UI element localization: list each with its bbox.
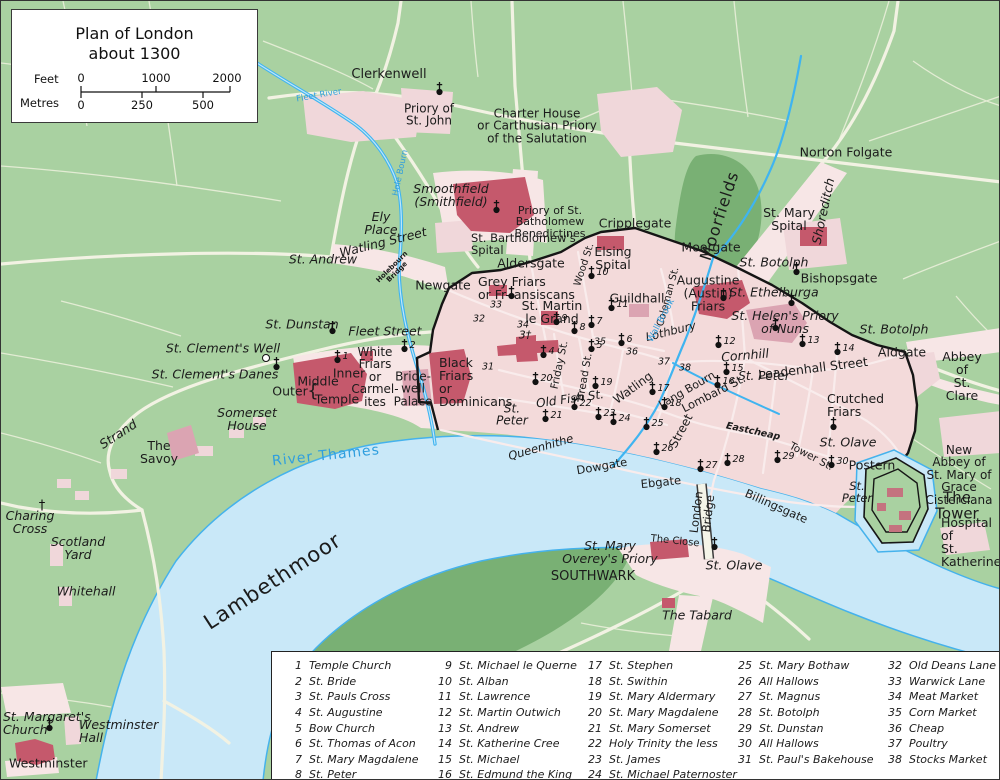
legend-item: 35Corn Market [884,705,996,721]
scale-bar [12,10,257,122]
legend-item-number: 15 [434,753,452,766]
church-icon [271,356,282,375]
legend-item: 3St. Pauls Cross [284,689,419,705]
legend-item-number: 27 [734,690,752,703]
legend-item-number: 9 [434,659,452,672]
legend-item-number: 10 [434,675,452,688]
legend-item-number: 28 [734,706,752,719]
legend-item: 11St. Lawrence [434,689,577,705]
legend-item-number: 1 [284,659,302,672]
legend-item-name: St. Dunstan [759,722,823,735]
church-number: 16 [723,376,735,387]
church-number: 10 [597,267,609,278]
legend-column: 1Temple Church2St. Bride3St. Pauls Cross… [284,658,419,780]
legend-item: 2St. Bride [284,674,419,690]
church-number: 8 [580,322,586,333]
legend-item: 23St. James [584,752,737,768]
map-title-box: Plan of London about 1300 Feet Metres 0 … [11,9,258,123]
legend-item-name: St. Mary Magdalene [309,753,419,766]
legend-item-number: 3 [284,690,302,703]
church-icon: 6 [616,332,627,351]
legend-item: 10St. Alban [434,674,577,690]
legend-item: 22Holy Trinity the less [584,736,737,752]
legend-item-name: Bow Church [309,722,375,735]
legend-item-name: St. Andrew [459,722,519,735]
legend-item-number: 17 [584,659,602,672]
legend-item-name: St. Swithin [609,675,668,688]
legend-item: 12St. Martin Outwich [434,705,577,721]
church-icon: 24 [608,411,619,430]
legend-item-name: St. Paul's Bakehouse [759,753,874,766]
church-icon [44,717,55,736]
legend-item-number: 7 [284,753,302,766]
legend-item-number: 35 [884,706,902,719]
legend-item: 38Stocks Market [884,752,996,768]
church-icon: 29 [772,449,783,468]
church-number: 2 [410,340,416,351]
legend-item-number: 29 [734,722,752,735]
church-icon: 8 [569,320,580,339]
legend-column: 9St. Michael le Querne10St. Alban11St. L… [434,658,577,780]
church-icon: 26 [651,441,662,460]
church-icon: 25 [641,416,652,435]
legend-item-name: St. Edmund the King [459,768,572,780]
church-icon: 18 [659,396,670,415]
legend-item: 21St. Mary Somerset [584,720,737,736]
legend-item: 13St. Andrew [434,720,577,736]
legend: 1Temple Church2St. Bride3St. Pauls Cross… [271,651,1000,780]
church-icon: 27 [695,458,706,477]
legend-item-name: St. Michael le Querne [459,659,577,672]
legend-item: 26All Hallows [734,674,874,690]
legend-item-number: 33 [884,675,902,688]
church-number: 13 [808,335,820,346]
legend-item: 14St. Katherine Cree [434,736,577,752]
legend-item: 4St. Augustine [284,705,419,721]
legend-item-name: St. Katherine Cree [459,737,559,750]
legend-item: 36Cheap [884,720,996,736]
well-icon [262,354,270,362]
church-icon [506,285,517,304]
church-number: 14 [843,343,855,354]
legend-item: 18St. Swithin [584,674,737,690]
legend-item-number: 38 [884,753,902,766]
legend-item-name: St. Mary Aldermary [609,690,715,703]
church-icon: 1 [332,349,343,368]
legend-item-name: St. Stephen [609,659,673,672]
legend-item: 15St. Michael [434,752,577,768]
legend-item-number: 14 [434,737,452,750]
legend-item: 37Poultry [884,736,996,752]
church-icon [491,199,502,218]
church-number: 11 [617,299,629,310]
legend-item: 16St. Edmund the King [434,767,577,780]
church-icon: 10 [586,265,597,284]
site-number: 32 [473,314,485,325]
church-number: 21 [551,410,563,421]
legend-item-name: St. Mary Bothaw [759,659,849,672]
legend-item-name: Old Deans Lane [909,659,996,672]
legend-item-number: 25 [734,659,752,672]
legend-item-number: 12 [434,706,452,719]
legend-item-name: St. Mary Magdalene [609,706,719,719]
legend-item-number: 26 [734,675,752,688]
church-icon: 17 [647,381,658,400]
church-icon [791,261,802,280]
legend-item-number: 16 [434,768,452,780]
legend-item-name: St. Lawrence [459,690,530,703]
legend-item-name: St. Magnus [759,690,820,703]
legend-item: 31St. Paul's Bakehouse [734,752,874,768]
legend-item: 6St. Thomas of Acon [284,736,419,752]
church-number: 1 [343,351,349,362]
church-number: 9 [562,313,568,324]
cross-icon: † [39,499,46,514]
legend-item-number: 2 [284,675,302,688]
church-icon: 23 [593,406,604,425]
legend-item-name: St. Michael [459,753,519,766]
legend-item-number: 6 [284,737,302,750]
church-number: 27 [706,460,718,471]
legend-item: 8St. Peter [284,767,419,780]
legend-item-number: 37 [884,737,902,750]
legend-item: 1Temple Church [284,658,419,674]
site-number: 38 [679,363,691,374]
church-number: 17 [658,383,670,394]
legend-item-name: Cheap [909,722,944,735]
map-of-london-1300: Fleet RiverClerkenwellPriory of St. John… [0,0,1000,780]
legend-item-name: St. Botolph [759,706,820,719]
legend-item: 9St. Michael le Querne [434,658,577,674]
legend-item-name: St. Michael Paternoster [609,768,737,780]
legend-item-number: 19 [584,690,602,703]
church-icon: 12 [713,334,724,353]
legend-item-name: St. Martin Outwich [459,706,561,719]
legend-item: 25St. Mary Bothaw [734,658,874,674]
church-number: 18 [670,398,682,409]
legend-item-number: 11 [434,690,452,703]
church-icon [786,292,797,311]
site-number: 35 [594,337,606,348]
church-number: 12 [724,336,736,347]
church-icon: 11 [606,297,617,316]
church-icon [434,81,445,100]
legend-item-name: St. Augustine [309,706,383,719]
church-number: 7 [597,316,603,327]
church-number: 4 [549,346,555,357]
legend-item: 5Bow Church [284,720,419,736]
legend-item-name: Warwick Lane [909,675,985,688]
legend-item-name: St. Peter [309,768,356,780]
legend-item-number: 34 [884,690,902,703]
church-icon: 2 [399,338,410,357]
church-icon [709,536,720,555]
legend-item-name: Holy Trinity the less [609,737,718,750]
legend-item: 30All Hallows [734,736,874,752]
church-number: 25 [652,418,664,429]
legend-item-number: 4 [284,706,302,719]
church-icon: 7 [586,314,597,333]
legend-item-name: St. Bride [309,675,356,688]
legend-item: 20St. Mary Magdalene [584,705,737,721]
legend-item-number: 5 [284,722,302,735]
church-number: 24 [619,413,631,424]
legend-item: 7St. Mary Magdalene [284,752,419,768]
legend-item-number: 21 [584,722,602,735]
legend-item-name: St. Thomas of Acon [309,737,416,750]
legend-item-name: Poultry [909,737,948,750]
church-number: 6 [627,334,633,345]
legend-item-number: 8 [284,768,302,780]
legend-item: 28St. Botolph [734,705,874,721]
church-icon: 14 [832,341,843,360]
church-icon [828,416,839,435]
legend-item-name: St. Pauls Cross [309,690,390,703]
church-number: 29 [783,451,795,462]
church-number: 19 [601,377,613,388]
church-icon: 28 [722,452,733,471]
legend-item: 29St. Dunstan [734,720,874,736]
legend-item-name: St. Mary Somerset [609,722,711,735]
site-number: 36 [626,347,638,358]
legend-item: 34Meat Market [884,689,996,705]
legend-item: 17St. Stephen [584,658,737,674]
church-icon: 22 [569,396,580,415]
church-number: 22 [580,398,592,409]
legend-item-name: St. Alban [459,675,509,688]
legend-item-number: 13 [434,722,452,735]
legend-item: 27St. Magnus [734,689,874,705]
church-icon [327,320,338,339]
site-number: 34 [517,320,529,331]
church-number: 15 [732,363,744,374]
legend-column: 25St. Mary Bothaw26All Hallows27St. Magn… [734,658,874,767]
legend-item-number: 22 [584,737,602,750]
church-icon: 21 [540,408,551,427]
legend-item-name: Stocks Market [909,753,987,766]
legend-item: 32Old Deans Lane [884,658,996,674]
church-icon: 16 [712,374,723,393]
church-icon [718,287,729,306]
legend-item-number: 36 [884,722,902,735]
legend-item-number: 20 [584,706,602,719]
legend-item-name: Meat Market [909,690,978,703]
site-number: 37 [658,357,670,368]
church-icon: 19 [590,375,601,394]
legend-item-name: All Hallows [759,675,819,688]
legend-item-name: All Hallows [759,737,819,750]
legend-item-name: St. James [609,753,661,766]
church-number: 26 [662,443,674,454]
legend-item: 24St. Michael Paternoster [584,767,737,780]
church-number: 20 [541,373,553,384]
church-icon: 13 [797,333,808,352]
legend-item: 19St. Mary Aldermary [584,689,737,705]
site-number: 33 [490,300,502,311]
church-icon: 20 [530,371,541,390]
legend-column: 32Old Deans Lane33Warwick Lane34Meat Mar… [884,658,996,767]
legend-item-number: 30 [734,737,752,750]
legend-item-name: Temple Church [309,659,391,672]
church-number: 30 [837,456,849,467]
church-icon: 9 [551,311,562,330]
legend-item-number: 32 [884,659,902,672]
church-number: 28 [733,454,745,465]
legend-column: 17St. Stephen18St. Swithin19St. Mary Ald… [584,658,737,780]
church-icon [770,317,781,336]
legend-item-number: 24 [584,768,602,780]
site-number: 31 [482,362,494,373]
legend-item-name: Corn Market [909,706,977,719]
legend-item-number: 23 [584,753,602,766]
legend-item-number: 18 [584,675,602,688]
legend-item: 33Warwick Lane [884,674,996,690]
church-icon: 4 [538,344,549,363]
legend-item-number: 31 [734,753,752,766]
church-icon: 30 [826,454,837,473]
